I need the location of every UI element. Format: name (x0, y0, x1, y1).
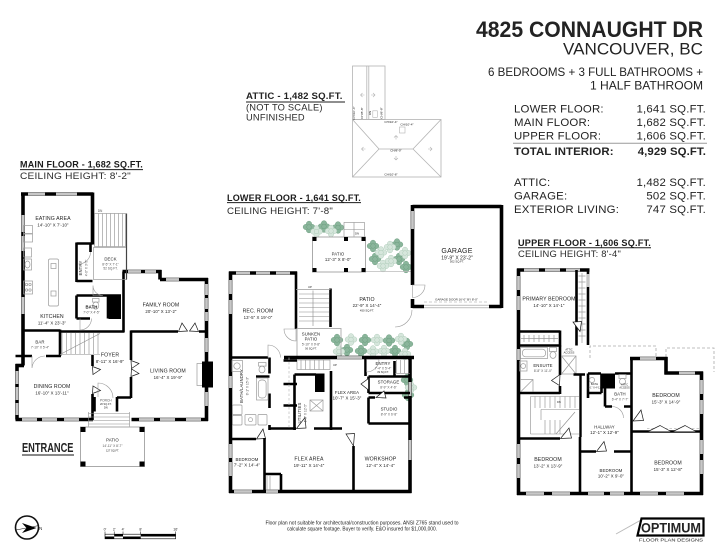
svg-text:8'-1" X 15'-3": 8'-1" X 15'-3" (246, 377, 250, 395)
svg-text:UTILITIES: UTILITIES (297, 402, 302, 423)
svg-text:BATH: BATH (591, 382, 598, 386)
svg-text:1,482 SQ.FT.: 1,482 SQ.FT. (636, 177, 706, 189)
svg-text:7'-10" X 5'-4": 7'-10" X 5'-4" (31, 346, 49, 350)
svg-text:ENTRANCE: ENTRANCE (22, 440, 74, 455)
svg-text:8'-9" X 4'-6": 8'-9" X 4'-6" (380, 386, 397, 390)
svg-text:4'-0" X 3'-5": 4'-0" X 3'-5" (85, 260, 89, 277)
svg-text:GARAGE DOOR 16'-0" BY 8'-0": GARAGE DOOR 16'-0" BY 8'-0" (435, 298, 478, 302)
svg-text:DN: DN (557, 400, 561, 404)
svg-text:CEILING HEIGHT: 8'-4": CEILING HEIGHT: 8'-4" (518, 249, 621, 259)
svg-text:DN: DN (98, 209, 103, 213)
svg-text:5'-9" X 12'-5": 5'-9" X 12'-5" (304, 404, 308, 422)
svg-text:BEDROOM: BEDROOM (654, 461, 682, 467)
svg-text:BEDROOM: BEDROOM (534, 457, 562, 463)
svg-text:2': 2' (113, 528, 116, 532)
svg-text:(NOT TO SCALE): (NOT TO SCALE) (246, 103, 323, 113)
svg-text:LOWER FLOOR:: LOWER FLOOR: (514, 104, 604, 116)
svg-text:TOTAL INTERIOR:: TOTAL INTERIOR: (514, 146, 614, 158)
svg-text:CEILING HEIGHT: 8'-2": CEILING HEIGHT: 8'-2" (20, 171, 131, 181)
svg-text:14'-10" X 14'-1": 14'-10" X 14'-1" (533, 303, 565, 308)
svg-text:LIVING ROOM: LIVING ROOM (150, 369, 186, 375)
svg-text:10'-7" X 15'-3": 10'-7" X 15'-3" (333, 396, 362, 401)
svg-text:VANCOUVER, BC: VANCOUVER, BC (563, 40, 703, 59)
svg-text:ATTIC:: ATTIC: (514, 177, 550, 189)
svg-text:11'-4" X 23'-3": 11'-4" X 23'-3" (38, 321, 67, 326)
svg-text:4': 4' (122, 528, 125, 532)
svg-text:6'-4" X 7'-7": 6'-4" X 7'-7" (612, 398, 629, 402)
svg-text:HALLWAY: HALLWAY (594, 425, 614, 430)
svg-text:ACCESS: ACCESS (619, 387, 630, 390)
svg-text:MAIN FLOOR - 1,682 SQ.FT.: MAIN FLOOR - 1,682 SQ.FT. (20, 160, 143, 171)
svg-text:CH/10'-8": CH/10'-8" (384, 173, 397, 177)
svg-text:ATTIC - 1,482 SQ.FT.: ATTIC - 1,482 SQ.FT. (246, 91, 343, 102)
svg-text:STUDIO: STUDIO (381, 407, 398, 412)
svg-text:ACCESS: ACCESS (564, 351, 575, 355)
svg-text:PATIO: PATIO (332, 252, 345, 257)
svg-text:ENSUITE: ENSUITE (533, 363, 552, 368)
svg-text:STORAGE: STORAGE (378, 380, 400, 385)
svg-text:8'-8" X 11'-0": 8'-8" X 11'-0" (534, 369, 552, 373)
svg-text:450 SQ.FT.: 450 SQ.FT. (360, 309, 374, 313)
svg-text:13'-2" X 13'-9": 13'-2" X 13'-9" (534, 464, 563, 469)
svg-text:7'-0" X 4'-5": 7'-0" X 4'-5" (83, 311, 100, 315)
svg-text:PATIO: PATIO (305, 337, 318, 342)
svg-text:15'-3" X 12'-8": 15'-3" X 12'-8" (654, 467, 683, 472)
svg-text:FLEX AREA: FLEX AREA (335, 390, 359, 395)
svg-text:FOYER: FOYER (101, 353, 120, 359)
svg-text:20 SQ.FT.: 20 SQ.FT. (100, 402, 112, 406)
svg-text:14'-11" X 8'-7": 14'-11" X 8'-7" (103, 444, 123, 448)
svg-text:CH/10'-4": CH/10'-4" (400, 123, 413, 127)
svg-text:CH/8'-8": CH/8'-8" (380, 107, 384, 119)
svg-text:PORCH: PORCH (100, 399, 112, 403)
svg-text:12'-3" X 8'-0": 12'-3" X 8'-0" (325, 257, 352, 262)
svg-text:BATH: BATH (614, 392, 626, 397)
svg-text:PRIMARY BEDROOM: PRIMARY BEDROOM (522, 297, 575, 303)
svg-text:BEDROOM: BEDROOM (236, 457, 259, 462)
svg-text:8': 8' (139, 528, 142, 532)
svg-text:5'-10" X 9'-8": 5'-10" X 9'-8" (302, 343, 320, 347)
svg-text:52 SQ.FT.: 52 SQ.FT. (103, 267, 117, 271)
svg-text:56 SQ.FT.: 56 SQ.FT. (305, 347, 317, 351)
svg-text:EXTERIOR LIVING:: EXTERIOR LIVING: (514, 204, 619, 216)
svg-text:12'-4" X 14'-4": 12'-4" X 14'-4" (366, 463, 395, 468)
svg-text:UNFINISHED: UNFINISHED (246, 113, 305, 123)
svg-text:UP: UP (333, 363, 337, 367)
svg-text:1,641 SQ.FT.: 1,641 SQ.FT. (636, 104, 706, 116)
svg-text:10'-2" X 9'-0": 10'-2" X 9'-0" (598, 474, 625, 479)
svg-text:EATING AREA: EATING AREA (35, 216, 71, 222)
svg-text:502 SQ.FT.: 502 SQ.FT. (646, 191, 706, 203)
svg-text:DINING ROOM: DINING ROOM (34, 384, 71, 390)
svg-text:ENTRY: ENTRY (78, 260, 83, 275)
svg-text:8'-11" X 16'-9": 8'-11" X 16'-9" (96, 359, 125, 364)
svg-text:FLEX AREA: FLEX AREA (294, 457, 324, 463)
svg-text:1,682 SQ.FT.: 1,682 SQ.FT. (636, 117, 706, 129)
svg-text:BATH: BATH (85, 305, 97, 310)
svg-text:7'-2" X 14'-4": 7'-2" X 14'-4" (234, 463, 261, 468)
svg-text:CH/8'-8": CH/8'-8" (360, 107, 364, 119)
svg-text:7'-4" X 5'-4": 7'-4" X 5'-4" (375, 367, 392, 371)
svg-text:MAIN FLOOR:: MAIN FLOOR: (514, 117, 590, 129)
svg-text:BEDROOM: BEDROOM (652, 393, 680, 399)
svg-text:1,606 SQ.FT.: 1,606 SQ.FT. (636, 131, 706, 143)
svg-text:PATIO: PATIO (106, 438, 119, 443)
svg-text:12'-1" X 12'-9": 12'-1" X 12'-9" (590, 430, 619, 435)
svg-text:CH/10'-4": CH/10'-4" (384, 120, 397, 124)
svg-text:14'-10" X 7'-10": 14'-10" X 7'-10" (37, 223, 69, 228)
svg-text:1 HALF BATHROOM: 1 HALF BATHROOM (590, 79, 703, 93)
svg-text:DN: DN (355, 232, 359, 236)
svg-text:16'-10" X 13'-11": 16'-10" X 13'-11" (35, 391, 69, 396)
svg-text:13'-5" X 19'-0": 13'-5" X 19'-0" (244, 315, 273, 320)
svg-text:KITCHEN: KITCHEN (40, 314, 64, 320)
svg-text:15'-3" X 14'-9": 15'-3" X 14'-9" (652, 400, 681, 405)
svg-text:FAMILY ROOM: FAMILY ROOM (143, 303, 180, 309)
svg-text:CEILING HEIGHT: 7'-8": CEILING HEIGHT: 7'-8" (227, 206, 333, 216)
svg-text:calculate square footage. Buye: calculate square footage. Buyer to verif… (287, 527, 437, 533)
svg-text:DECK: DECK (104, 257, 116, 262)
svg-text:FLOOR PLAN DESIGNS: FLOOR PLAN DESIGNS (639, 538, 703, 543)
svg-text:4825 CONNAUGHT DR: 4825 CONNAUGHT DR (476, 17, 703, 42)
svg-text:UPPER FLOOR:: UPPER FLOOR: (514, 131, 601, 143)
svg-text:BEDROOM: BEDROOM (600, 468, 623, 473)
svg-text:8'-9" X 6'-8": 8'-9" X 6'-8" (381, 413, 398, 417)
svg-text:DN: DN (368, 111, 372, 115)
svg-text:127 SQ.FT.: 127 SQ.FT. (106, 449, 119, 453)
svg-text:BATH/LAUNDRY: BATH/LAUNDRY (239, 369, 244, 403)
svg-text:4,929 SQ.FT.: 4,929 SQ.FT. (638, 146, 706, 158)
svg-text:3'-1" X 4'-11": 3'-1" X 4'-11" (587, 387, 601, 390)
svg-text:20'-10" X 13'-2": 20'-10" X 13'-2" (145, 309, 177, 314)
svg-text:0': 0' (104, 528, 107, 532)
svg-text:CH/10'-4": CH/10'-4" (352, 106, 356, 119)
svg-text:WORKSHOP: WORKSHOP (365, 457, 397, 463)
svg-text:N: N (39, 526, 42, 531)
svg-text:747 SQ.FT.: 747 SQ.FT. (646, 204, 706, 216)
svg-text:502 SQ.FT.: 502 SQ.FT. (450, 260, 464, 264)
svg-text:ENTRY: ENTRY (376, 361, 391, 366)
svg-text:39 SQ.FT.: 39 SQ.FT. (377, 370, 389, 374)
svg-text:GARAGE:: GARAGE: (514, 191, 567, 203)
svg-text:16': 16' (173, 528, 178, 532)
svg-text:DN: DN (104, 406, 108, 410)
svg-text:19'-11" X 14'-4": 19'-11" X 14'-4" (294, 463, 325, 468)
svg-text:GARAGE: GARAGE (441, 248, 472, 255)
svg-text:16'-4" X 19'-9": 16'-4" X 19'-9" (154, 375, 183, 380)
svg-text:22'-9" X 14'-4": 22'-9" X 14'-4" (353, 303, 382, 308)
svg-text:6 BEDROOMS + 3 FULL BATHROOMS: 6 BEDROOMS + 3 FULL BATHROOMS + (488, 65, 703, 79)
svg-text:BAR: BAR (35, 340, 44, 345)
svg-text:UP: UP (308, 285, 312, 289)
svg-text:OPTIMUM: OPTIMUM (641, 521, 701, 536)
svg-text:CH/8'-0": CH/8'-0" (390, 149, 402, 153)
svg-text:REC. ROOM: REC. ROOM (243, 309, 274, 315)
